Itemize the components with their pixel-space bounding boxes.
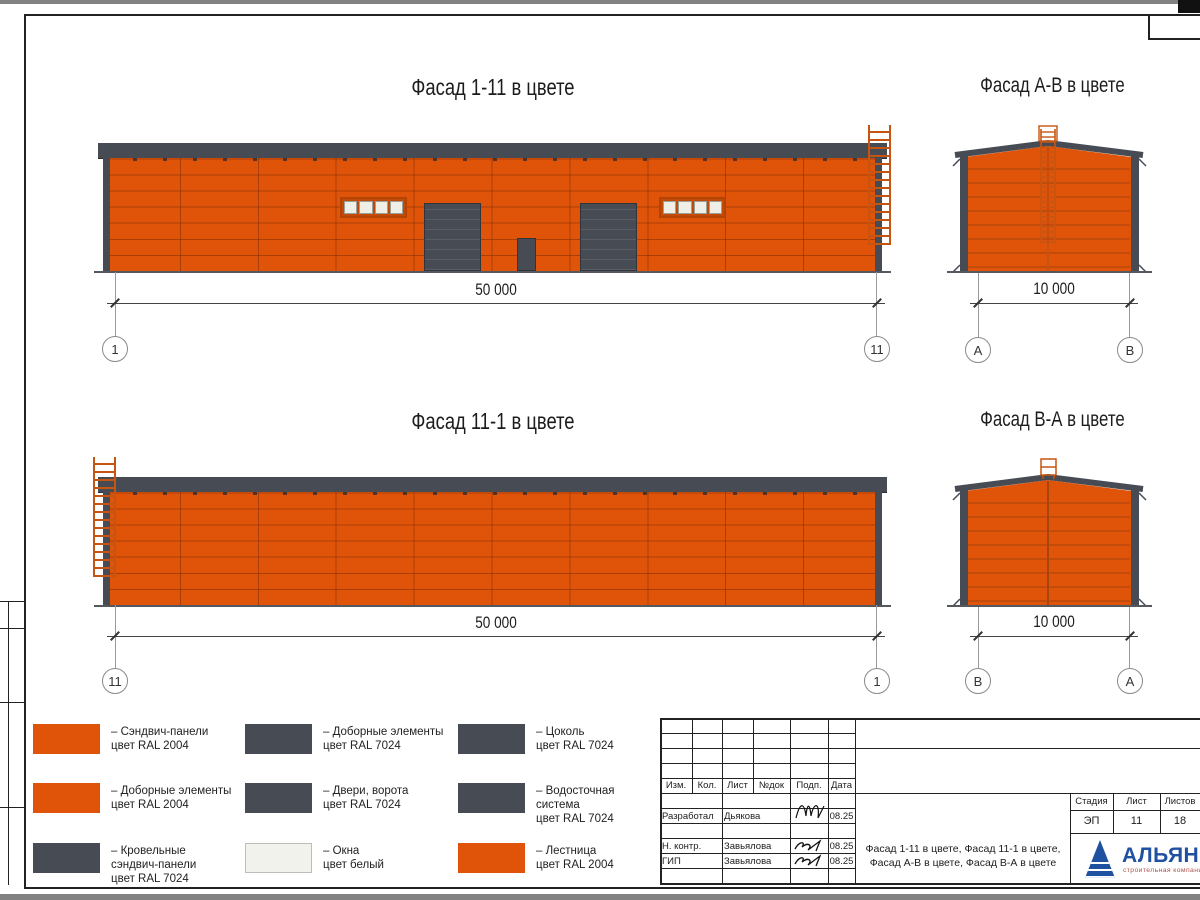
axis-bubble: 11 [102,668,128,694]
legend-label: – Доборные элементыцвет RAL 2004 [111,783,231,813]
dimension-line [970,303,1138,304]
wall-panels [103,158,882,271]
top-right-box [1148,14,1200,40]
margin-table-line [0,628,24,629]
legend-label: – Доборные элементыцвет RAL 7024 [323,724,443,754]
margin-table-line [0,601,24,602]
facade-11-1-elevation [103,477,882,607]
sheets-total: 18 [1160,815,1200,827]
document-title: Фасад 1-11 в цвете, Фасад 11-1 в цвете, … [857,842,1069,870]
legend-item: – Водосточнаясистемацвет RAL 7024 [458,783,615,826]
signature [793,853,827,868]
stage-header: Стадия [1070,796,1113,807]
alliance-logo-icon [1085,840,1115,878]
facade-b-a-elevation [947,455,1152,610]
axis-bubble: А [1117,668,1143,694]
facade-a-b-elevation [947,121,1152,276]
title-block: Изм. Кол. Лист №док Подп. Дата Разработа… [660,718,1200,885]
corner-column [103,158,110,271]
facade-1-11-title: Фасад 1-11 в цвете [103,74,883,101]
signature [793,838,827,853]
rev-header-data: Дата [828,780,855,791]
dimension-line [107,636,885,637]
roof-band [98,477,887,493]
legend-item: – Лестницацвет RAL 2004 [458,843,614,873]
date-label: 08.25 [828,841,855,852]
rev-header-ndok: №док [753,780,790,791]
legend-swatch [245,843,312,873]
axis-bubble: 1 [864,668,890,694]
gable-elevation-svg [947,455,1152,610]
wall-panels [103,492,882,605]
margin-table-line [0,702,24,703]
legend-item: – Окнацвет белый [245,843,384,873]
alliance-logo-subtitle: строительная компания [1123,867,1200,874]
rev-header-kol: Кол. [692,780,722,791]
top-gray-strip [0,0,1200,4]
roof-band [98,143,887,159]
legend-label: – Окнацвет белый [323,843,384,873]
legend-label: – Водосточнаясистемацвет RAL 7024 [536,783,615,826]
axis-bubble: В [965,668,991,694]
role-label: Н. контр. [662,841,701,852]
dimension-line [107,303,885,304]
legend-label: – Цокольцвет RAL 7024 [536,724,614,754]
dimension-11-1: 50 000 11 1 [115,605,877,696]
dimension-1-11: 50 000 1 11 [115,272,877,363]
role-label: Разработал [662,811,714,822]
legend-swatch [245,783,312,813]
gable-elevation-svg [947,121,1152,276]
rev-header-izm: Изм. [660,780,692,791]
legend-swatch [245,724,312,754]
corner-black-mark [1178,0,1200,13]
facade-a-b-title: Фасад А-В в цвете [945,74,1160,98]
name-label: Завьялова [724,841,771,852]
name-label: Дьякова [724,811,760,822]
legend-swatch [458,783,525,813]
dimension-label: 50 000 [115,280,877,300]
margin-table-line [8,601,9,885]
stage-value: ЭП [1070,815,1113,827]
axis-bubble: 1 [102,336,128,362]
axis-bubble: В [1117,337,1143,363]
bottom-gray-strip [0,894,1200,900]
legend-swatch [458,724,525,754]
legend-swatch [458,843,525,873]
sheet-number: 11 [1113,815,1160,827]
rev-header-podp: Подп. [790,780,828,791]
sheets-header: Листов [1160,796,1200,807]
legend-swatch [33,724,100,754]
roof-ladder [868,125,891,245]
overhead-door [580,203,637,271]
facade-11-1-title: Фасад 11-1 в цвете [103,408,883,435]
dimension-b-a: 10 000 В А [978,607,1130,698]
legend-item: – Цокольцвет RAL 7024 [458,724,614,754]
entry-door [517,238,536,271]
signature [793,798,827,822]
window-strip [340,197,407,218]
facade-1-11-elevation [103,143,882,273]
legend-item: – Доборные элементыцвет RAL 7024 [245,724,443,754]
dimension-label: 50 000 [115,613,877,633]
legend-item: – Сэндвич-панелицвет RAL 2004 [33,724,208,754]
alliance-logo-name: АЛЬЯНС [1122,844,1200,868]
facade-b-a-title: Фасад В-А в цвете [945,408,1160,432]
legend-item: – Двери, воротацвет RAL 7024 [245,783,408,813]
role-label: ГИП [662,856,681,867]
date-label: 08.25 [828,856,855,867]
legend-label: – Сэндвич-панелицвет RAL 2004 [111,724,208,754]
sheet-header: Лист [1113,796,1160,807]
name-label: Завьялова [724,856,771,867]
dimension-line [970,636,1138,637]
legend-item: – Доборные элементыцвет RAL 2004 [33,783,231,813]
legend-swatch [33,843,100,873]
drawing-sheet: Фасад 1-11 в цвете 50 000 1 [0,0,1200,900]
rev-header-list: Лист [722,780,753,791]
date-label: 08.25 [828,811,855,822]
axis-bubble: А [965,337,991,363]
window-strip [659,197,726,218]
legend-label: – Лестницацвет RAL 2004 [536,843,614,873]
dimension-label: 10 000 [978,279,1130,299]
dimension-a-b: 10 000 А В [978,273,1130,364]
legend-label: – Двери, воротацвет RAL 7024 [323,783,408,813]
legend-item: – Кровельныесэндвич-панелицвет RAL 7024 [33,843,196,886]
margin-table-line [0,807,24,808]
axis-bubble: 11 [864,336,890,362]
legend-label: – Кровельныесэндвич-панелицвет RAL 7024 [111,843,196,886]
legend-swatch [33,783,100,813]
dimension-label: 10 000 [978,612,1130,632]
overhead-door [424,203,481,271]
corner-column [875,492,882,605]
roof-ladder [93,457,116,577]
